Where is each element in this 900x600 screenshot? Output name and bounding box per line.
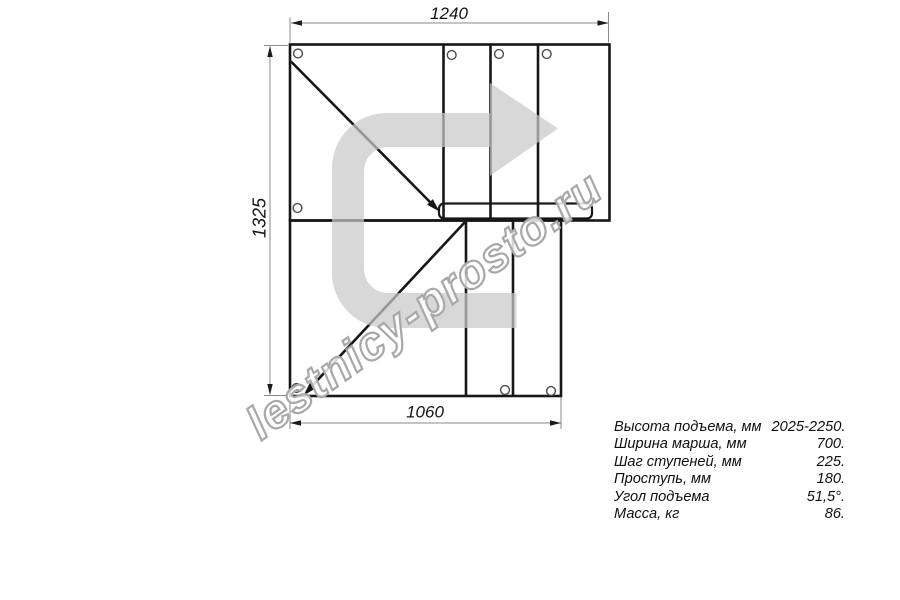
dim-arrow-right-icon	[598, 20, 609, 25]
dim-arrow-up-icon	[267, 46, 272, 57]
spec-row: Угол подъема 51,5°.	[614, 489, 845, 506]
spec-value: 86.	[815, 506, 845, 523]
spec-row: Проступь, мм 180.	[614, 471, 845, 488]
mounting-hole	[447, 51, 456, 60]
mounting-hole	[293, 204, 302, 213]
mounting-hole	[542, 50, 551, 59]
mounting-hole	[495, 50, 504, 59]
spec-value: 225.	[807, 454, 845, 471]
spec-label: Проступь, мм	[614, 471, 711, 488]
spec-value: 51,5°.	[797, 489, 845, 506]
spec-row: Масса, кг 86.	[614, 506, 845, 523]
spec-row: Ширина марша, мм 700.	[614, 436, 845, 453]
mounting-hole	[547, 387, 556, 396]
dimension-top-label: 1240	[430, 4, 468, 23]
mounting-hole	[294, 49, 303, 58]
spec-label: Шаг ступеней, мм	[614, 454, 742, 471]
spec-label: Ширина марша, мм	[614, 436, 747, 453]
spec-value: 2025-2250.	[762, 419, 846, 436]
spec-label: Высота подъема, мм	[614, 419, 762, 436]
spec-label: Масса, кг	[614, 506, 679, 523]
spec-value: 180.	[807, 471, 845, 488]
stair-plan-page: 1240 1325 1060 lestnicy-prosto.ru Высота…	[0, 0, 900, 600]
spec-label: Угол подъема	[614, 489, 709, 506]
dimension-left-label: 1325	[250, 197, 270, 238]
dimension-bottom-label: 1060	[406, 403, 444, 422]
spec-row: Шаг ступеней, мм 225.	[614, 454, 845, 471]
spec-value: 700.	[807, 436, 845, 453]
dim-arrow-left-icon	[291, 20, 302, 25]
mounting-hole	[501, 386, 510, 395]
spec-row: Высота подъема, мм 2025-2250.	[614, 419, 845, 436]
dim-arrow-right-icon	[550, 420, 561, 425]
spec-table: Высота подъема, мм 2025-2250. Ширина мар…	[614, 419, 845, 523]
